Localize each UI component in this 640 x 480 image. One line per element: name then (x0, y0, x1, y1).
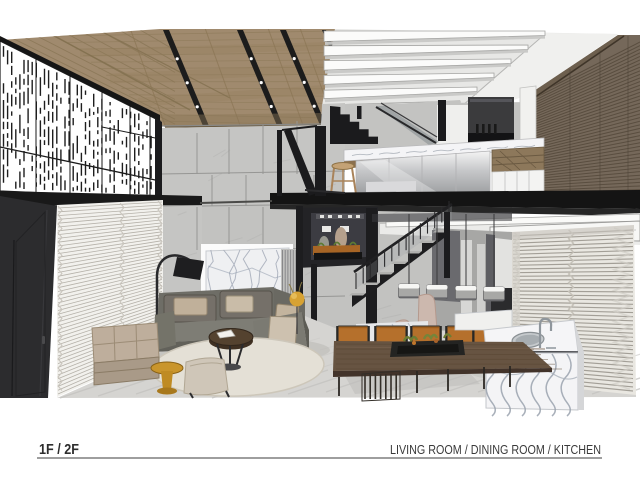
svg-text:LIVING ROOM / DINING ROOM / KI: LIVING ROOM / DINING ROOM / KITCHEN (390, 443, 601, 457)
svg-text:1F / 2F: 1F / 2F (39, 441, 79, 458)
